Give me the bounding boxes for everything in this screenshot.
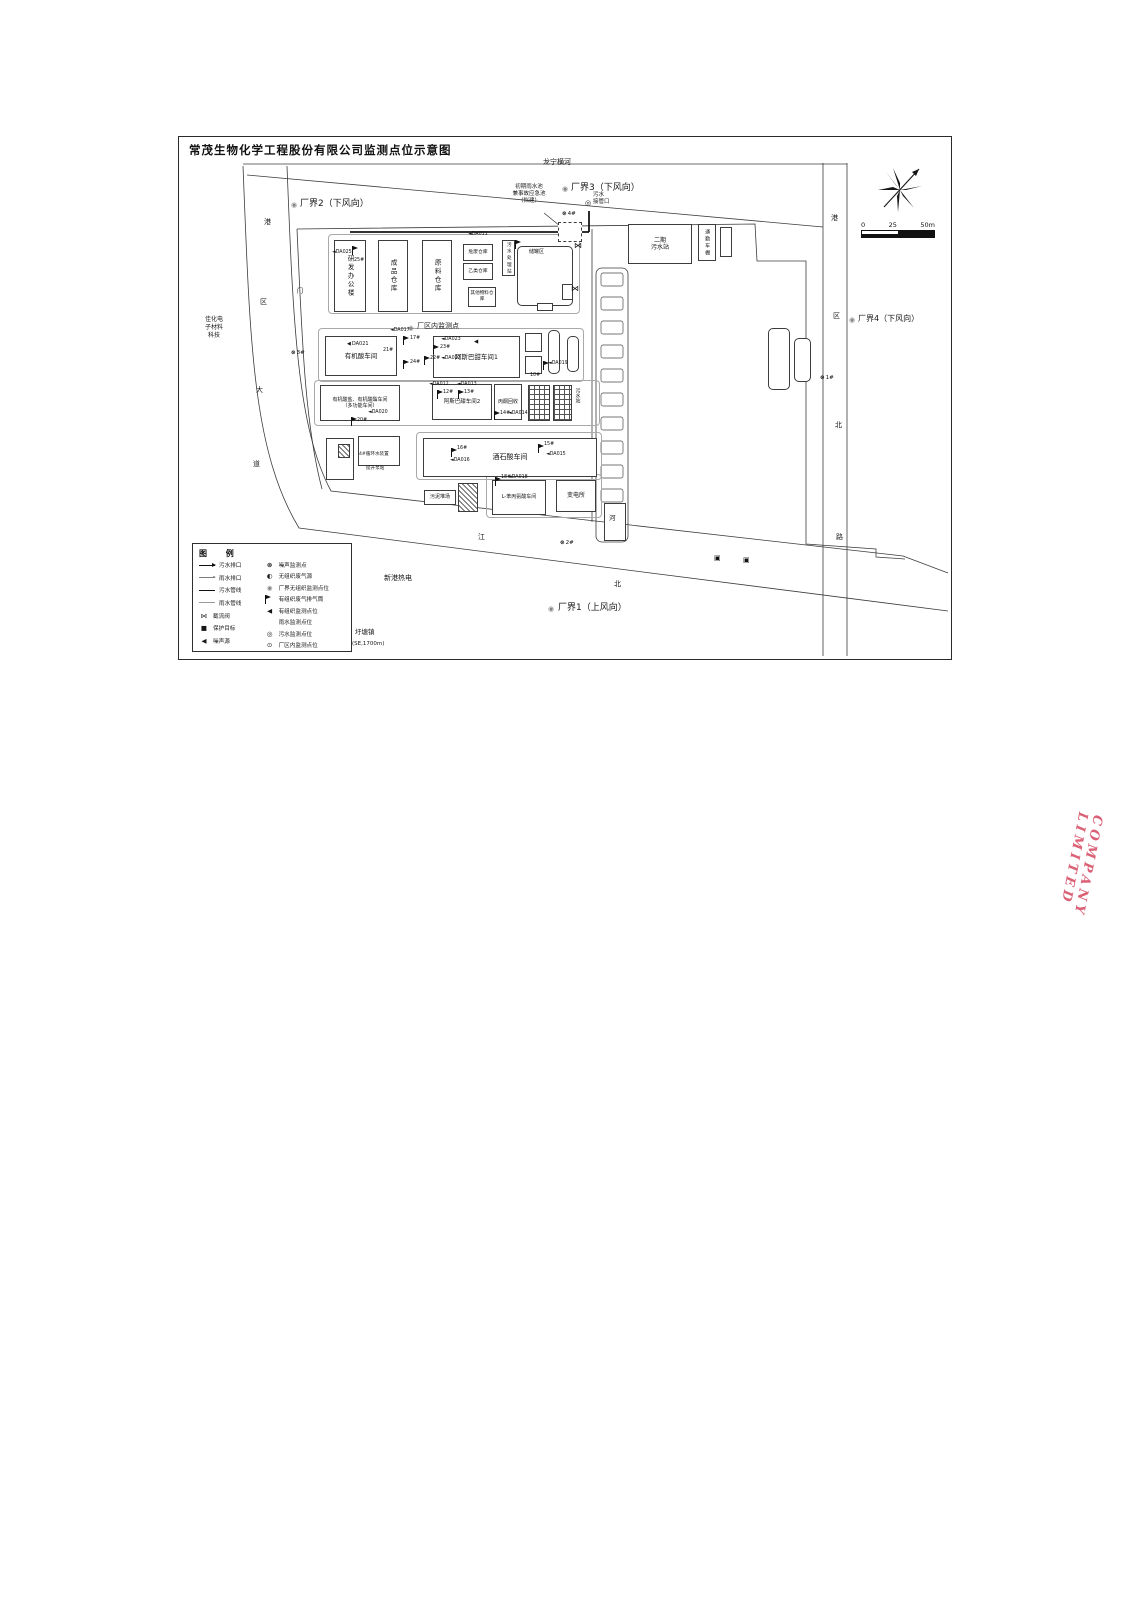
noise-point-3-text: 3# (297, 351, 305, 357)
label-da017: ◄DA017 (390, 329, 410, 334)
label-da016-text: ◄DA016 (450, 459, 470, 464)
initial-rainpond-label-text: 初期雨水池 兼事故应急池 （拟建） (512, 184, 545, 204)
label-da019: ◄DA019 (548, 362, 568, 367)
outfall-square-2: ▣ (743, 557, 750, 564)
stack-da024 (403, 360, 410, 369)
road-south-char-2-text: 北 (614, 580, 621, 588)
utility-box-a (525, 333, 542, 352)
organic-acid-salt-ester-workshop: 有机酸盐、有机酸酯车间 （多功能车间） (320, 385, 400, 421)
legend-rain-point-text: 雨水监测点位 (279, 618, 313, 626)
label-21: 21# (383, 349, 393, 354)
wastewater-treatment-station-text: 污水处理站 (506, 242, 512, 275)
sewage-connection-label: 污水 接管口 (593, 192, 610, 206)
small-shed (720, 227, 732, 257)
legend-protection-target-icon: ■ (199, 624, 209, 632)
legend-stack-text: 有组织废气排气筒 (279, 595, 324, 603)
legend-left-column: 污水排口雨水排口污水管线雨水管线⋈截流阀■保护目标◀噪声源 (199, 561, 265, 645)
legend-protection-target-text: 保护目标 (213, 624, 235, 632)
sludge-yard-sign: 污泥堆场 (424, 490, 456, 505)
road-east-char-1: 港 (831, 214, 838, 223)
legend-box: 图 例 污水排口雨水排口污水管线雨水管线⋈截流阀■保护目标◀噪声源 ⊗噪声监测点… (192, 543, 352, 652)
legend-cutoff-valve: ⋈截流阀 (199, 612, 265, 620)
neighbor-south-label-text: 新港热电 (384, 574, 412, 582)
lift-pump-label-text: 提升泵站 (366, 466, 384, 471)
label-23-text: 23# (440, 346, 450, 351)
legend-organized-point-icon: ◀ (265, 607, 275, 615)
legend-boundary-fugitive-point-icon: ◉ (265, 584, 275, 592)
label-16-text: 16# (457, 447, 467, 452)
initial-rainpond-label: 初期雨水池 兼事故应急池 （拟建） (500, 184, 558, 205)
label-da015-text: ◄DA015 (546, 453, 566, 458)
label-23: 23# (440, 346, 450, 351)
circulating-water-station (358, 436, 400, 466)
label-12-text: 12# (443, 391, 453, 396)
label-da023: ◄DA023 (441, 338, 461, 343)
inplant-point-label-text: 厂区内监测点 (417, 322, 459, 330)
rnd-office-building-text: 研发办公楼 (346, 255, 354, 298)
label-22-text: 22# (430, 357, 440, 362)
label-da022-text: ◄DA022 (441, 357, 461, 362)
label-17-text: 17# (410, 337, 420, 342)
boundary2-label-text: 厂界2（下风向） (300, 199, 369, 209)
label-da021-text: DA021 (352, 342, 369, 347)
label-da020: ◄DA020 (368, 411, 388, 416)
other-materials-warehouse-text: 其他物料仓库 (469, 291, 495, 302)
sludge-yard-hatch (458, 483, 478, 512)
scale-0: 0 (861, 221, 865, 229)
line-solid-icon (199, 588, 215, 593)
neighbor-west-label-text: 佳化电 子材料 科技 (205, 316, 223, 339)
raw-material-warehouse-text: 原料仓库 (433, 259, 441, 293)
label-20-text: 20# (357, 419, 367, 424)
road-south-char-1-text: 江 (478, 533, 485, 541)
label-da013-text: ◄DA013 (457, 383, 477, 388)
label-20: 20# (357, 419, 367, 424)
road-east-char-3: 北 (835, 421, 842, 430)
tank-farm-label-text: 储罐区 (529, 249, 544, 255)
wwtp-label: 污水站 (574, 388, 581, 403)
legend-inplant-point-icon: ⊙ (265, 641, 275, 649)
substation: 变电所 (556, 480, 596, 512)
aspartame-workshop-2-text: 阿斯巴甜车间2 (444, 399, 481, 406)
noise-point-2-text: 2# (566, 541, 574, 547)
legend-organized-point: ◀有组织监测点位 (265, 607, 348, 615)
legend-sewage-pipe: 污水管线 (199, 586, 265, 594)
legend-noise-point: ⊗噪声监测点 (265, 561, 348, 569)
road-west-char-1: 港 (264, 218, 271, 227)
boundary4-label: 厂界4（下风向） (858, 314, 919, 324)
neighbor-south-label: 新港热电 (384, 574, 412, 583)
legend-rain-pipe: 雨水管线 (199, 599, 265, 607)
sewage-connection-label-text: 污水 接管口 (593, 192, 610, 205)
legend-boundary-fugitive-point-text: 厂界无组织监测点位 (279, 584, 329, 592)
legend-fugitive-source-text: 无组织废气源 (279, 572, 313, 580)
circulating-water-label: 4#循环水装置 (359, 452, 389, 458)
stack-da017 (403, 336, 410, 345)
label-da018-text: ◄DA018 (508, 476, 528, 481)
label-da022: ◄DA022 (441, 357, 461, 362)
road-west-char-3: 大 (256, 386, 263, 395)
west-gate-char-text: 门 (297, 288, 303, 295)
legend-noise-source-icon: ◀ (199, 637, 209, 645)
legend-cutoff-valve-text: 截流阀 (213, 612, 230, 620)
stack-da024-icon (403, 360, 410, 369)
hazardous-waste-warehouse: 危废仓库 (463, 244, 493, 261)
label-25: 25# (354, 259, 364, 264)
boundary1-point: ◉ (548, 606, 554, 613)
noise-point-4-icon: ⊗ (562, 212, 567, 218)
label-da023-text: ◄DA023 (441, 338, 461, 343)
label-da015: ◄DA015 (546, 453, 566, 458)
legend-boundary-fugitive-point: ◉厂界无组织监测点位 (265, 584, 348, 592)
stack-da025 (352, 246, 359, 255)
boundary4-point: ◉ (849, 317, 855, 324)
outfall-square-1: ▣ (714, 555, 721, 562)
legend-sewage-outlet-text: 污水排口 (219, 561, 241, 569)
inplant-point-label: 厂区内监测点 (417, 322, 459, 331)
label-da016: ◄DA016 (450, 459, 470, 464)
sewage-connection-point: ◎ (585, 200, 591, 207)
river-north-name-text: 龙宁横河 (543, 158, 571, 166)
sludge-yard-sign-text: 污泥堆场 (430, 494, 450, 500)
phase2-wwtp: 二期 污水站 (628, 224, 692, 264)
legend-sewage-pipe-text: 污水管线 (219, 586, 241, 594)
label-da012-text: ◄DA012 (429, 383, 449, 388)
boundary2-point: ◉ (291, 202, 297, 209)
scale-bar: 0 25 50m (861, 221, 935, 238)
boundary4-point-icon: ◉ (849, 317, 855, 324)
label-12: 12# (443, 391, 453, 396)
legend-organized-point-text: 有组织监测点位 (279, 607, 318, 615)
legend-stack: 有组织废气排气筒 (265, 595, 348, 604)
label-da013: ◄DA013 (457, 383, 477, 388)
other-materials-warehouse: 其他物料仓库 (468, 287, 496, 307)
aspartame1-noise-source-icon: ◀ (474, 340, 478, 346)
label-16: 16# (457, 447, 467, 452)
stack-da023 (433, 345, 440, 354)
road-east-char-3-text: 北 (835, 421, 842, 429)
scale-25: 25 (889, 221, 897, 229)
stack-da017-icon (403, 336, 410, 345)
river-north-name: 龙宁横河 (543, 158, 571, 167)
commuter-shed: 通勤车棚 (698, 224, 716, 261)
legend-sewage-outlet: 污水排口 (199, 561, 265, 569)
label-13-text: 13# (464, 391, 474, 396)
wwtp-grid-a (528, 385, 550, 421)
legend-rain-point: 雨水监测点位 (265, 618, 348, 626)
label-da021: ◀DA021 (347, 342, 369, 347)
boundary4-label-text: 厂界4（下风向） (858, 314, 919, 323)
legend-rain-outlet: 雨水排口 (199, 574, 265, 582)
label-da019-text: ◄DA019 (548, 362, 568, 367)
legend-sewage-point-icon: ◎ (265, 630, 275, 638)
label-17: 17# (410, 337, 420, 342)
yutang-distance-label-text: (SE,1700m) (352, 641, 384, 647)
class-b-warehouse: 乙类仓库 (463, 263, 493, 280)
legend-inplant-point-text: 厂区内监测点位 (279, 641, 318, 649)
tank-farm-label: 储罐区 (529, 249, 544, 256)
road-west-char-1-text: 港 (264, 218, 271, 226)
scanned-document-page: 常茂生物化学工程股份有限公司监测点位示意图 (0, 0, 1131, 1600)
legend-rain-pipe-text: 雨水管线 (219, 599, 241, 607)
substation-text: 变电所 (567, 492, 585, 500)
cutoff-valve-1: ⋈ (574, 242, 582, 250)
boundary3-point-icon: ◉ (562, 186, 568, 193)
arrow-solid-icon (199, 563, 215, 568)
cutoff-valve-2: ⋈ (571, 285, 579, 293)
wwtp-label-text: 污水站 (575, 388, 581, 403)
scale-50m: 50m (920, 221, 935, 229)
road-west-char-4-text: 道 (253, 460, 260, 468)
legend-sewage-point-text: 污水监测点位 (279, 630, 313, 638)
gatehouse-inner (338, 444, 350, 458)
noise-point-3-icon: ⊗ (291, 351, 296, 357)
label-da014: ◄DA014 (508, 412, 528, 417)
wwtp-grid-b (553, 385, 572, 421)
legend-noise-point-icon: ⊗ (265, 561, 275, 569)
road-east-char-2-text: 区 (833, 312, 840, 320)
stack-da011-icon (515, 240, 522, 249)
legend-cutoff-valve-icon: ⋈ (199, 612, 209, 620)
scale-segment-1 (862, 231, 898, 237)
label-10-text: 10# (530, 374, 540, 379)
east-shed-b (794, 338, 811, 382)
label-25-text: 25# (354, 259, 364, 264)
stack-da023-icon (433, 345, 440, 354)
acetone-recovery-text: 丙酮回收 (498, 399, 518, 405)
east-shed-a (768, 328, 790, 390)
outfall-square-2-icon: ▣ (743, 557, 750, 564)
tower-b (567, 336, 579, 372)
class-b-warehouse-text: 乙类仓库 (468, 269, 487, 275)
label-21-text: 21# (383, 349, 393, 354)
outfall-square-1-icon: ▣ (714, 555, 721, 562)
stack-da025-icon (352, 246, 359, 255)
legend-fugitive-source: ◐无组织废气源 (265, 572, 348, 580)
l-phenylalanine-workshop-text: L-苯丙氨酸车间 (502, 494, 537, 500)
legend-sewage-point: ◎污水监测点位 (265, 630, 348, 638)
legend-protection-target: ■保护目标 (199, 624, 265, 632)
legend-rain-outlet-text: 雨水排口 (219, 574, 241, 582)
legend-noise-source: ◀噪声源 (199, 637, 265, 645)
label-22: 22# (430, 357, 440, 362)
legend-title: 图 例 (199, 548, 348, 559)
noise-point-4-text: 4# (568, 212, 576, 218)
line-thin-icon (199, 600, 215, 605)
legend-inplant-point: ⊙厂区内监测点位 (265, 641, 348, 649)
tartaric-acid-workshop-text: 酒石酸车间 (493, 453, 528, 462)
finished-goods-warehouse-text: 成品仓库 (389, 259, 397, 293)
label-da017-text: ◄DA017 (390, 329, 410, 334)
label-da020-text: ◄DA020 (368, 411, 388, 416)
label-da018: ◄DA018 (508, 476, 528, 481)
noise-point-2-icon: ⊗ (560, 541, 565, 547)
label-da025: ◄DA025 (332, 251, 352, 256)
neighbor-west-label: 佳化电 子材料 科技 (196, 316, 232, 339)
wastewater-treatment-station: 污水处理站 (502, 240, 515, 276)
noise-point-1: ⊗1# (820, 376, 834, 382)
label-da012: ◄DA012 (429, 383, 449, 388)
road-west-char-2-text: 区 (260, 298, 267, 306)
aspartame-workshop-1-text: 阿斯巴甜车间1 (455, 353, 498, 361)
label-24-text: 24# (410, 361, 420, 366)
legend-right-column: ⊗噪声监测点◐无组织废气源◉厂界无组织监测点位有组织废气排气筒◀有组织监测点位雨… (265, 561, 348, 649)
legend-noise-source-text: 噪声源 (213, 637, 230, 645)
river-east-char: 河 (609, 514, 616, 522)
label-da021-icon: ◀ (347, 342, 351, 347)
scale-bar-graphic (861, 230, 935, 238)
finished-goods-warehouse: 成品仓库 (378, 240, 408, 312)
road-east-char-4: 路 (836, 533, 843, 542)
yutang-town-label-text: 圩塘镇 (355, 628, 375, 636)
company-stamp: COMPANY LIMITED (1058, 812, 1114, 992)
boundary2-point-icon: ◉ (291, 202, 297, 209)
aspartame1-noise-source: ◀ (474, 340, 478, 346)
road-east-char-4-text: 路 (836, 533, 843, 541)
noise-point-2: ⊗2# (560, 541, 574, 547)
boundary1-point-icon: ◉ (548, 606, 554, 613)
legend-stack-icon (265, 595, 275, 604)
utility-box-b (525, 356, 542, 374)
noise-point-1-text: 1# (826, 376, 834, 382)
boundary1-label: 厂界1（上风向） (558, 603, 627, 615)
circulating-water-label-text: 4#循环水装置 (359, 452, 389, 457)
arrow-thin-icon (199, 575, 215, 580)
road-west-char-2: 区 (260, 298, 267, 307)
noise-point-4: ⊗4# (562, 212, 576, 218)
boundary1-label-text: 厂界1（上风向） (558, 603, 627, 613)
initial-rainwater-pond (558, 222, 582, 242)
label-13: 13# (464, 391, 474, 396)
west-gate-char: 门 (297, 288, 303, 296)
organic-acid-salt-ester-workshop-text: 有机酸盐、有机酸酯车间 （多功能车间） (332, 397, 387, 410)
drawing-title: 常茂生物化学工程股份有限公司监测点位示意图 (189, 142, 452, 158)
organic-acid-workshop-text: 有机酸车间 (345, 352, 378, 360)
phase2-wwtp-text: 二期 污水站 (651, 237, 669, 252)
boundary3-point: ◉ (562, 186, 568, 193)
yutang-distance-label: (SE,1700m) (352, 641, 384, 648)
road-west-char-4: 道 (253, 460, 260, 469)
road-south-char-1: 江 (478, 533, 485, 542)
hazardous-waste-warehouse-text: 危废仓库 (468, 250, 487, 256)
road-east-char-2: 区 (833, 312, 840, 321)
label-24: 24# (410, 361, 420, 366)
tank-farm-pump-box (537, 303, 553, 311)
boundary2-label: 厂界2（下风向） (300, 199, 369, 211)
noise-point-1-icon: ⊗ (820, 376, 825, 382)
cutoff-valve-2-icon: ⋈ (571, 285, 579, 293)
scale-segment-2 (898, 231, 934, 237)
label-10: 10# (530, 374, 540, 379)
commuter-shed-text: 通勤车棚 (704, 229, 710, 257)
sewage-connection-point-icon: ◎ (585, 200, 591, 207)
company-stamp-text: COMPANY LIMITED (1041, 811, 1105, 993)
yutang-town-label: 圩塘镇 (355, 628, 375, 636)
legend-noise-point-text: 噪声监测点 (279, 561, 307, 569)
legend-fugitive-source-icon: ◐ (265, 572, 275, 580)
stack-da011 (515, 240, 522, 249)
label-da025-text: ◄DA025 (332, 251, 352, 256)
label-da011-text: ◄DA011 (468, 233, 488, 238)
label-15-text: 15# (544, 443, 554, 448)
road-west-char-3-text: 大 (256, 386, 263, 394)
road-east-char-1-text: 港 (831, 214, 838, 222)
lift-pump-label: 提升泵站 (366, 466, 384, 472)
label-da011: ◄DA011 (468, 233, 488, 238)
cutoff-valve-1-icon: ⋈ (574, 242, 582, 250)
label-da014-text: ◄DA014 (508, 412, 528, 417)
noise-point-3: ⊗3# (291, 351, 305, 357)
label-15: 15# (544, 443, 554, 448)
river-east-char-text: 河 (609, 514, 616, 522)
raw-material-warehouse: 原料仓库 (422, 240, 452, 312)
road-south-char-2: 北 (614, 580, 621, 589)
